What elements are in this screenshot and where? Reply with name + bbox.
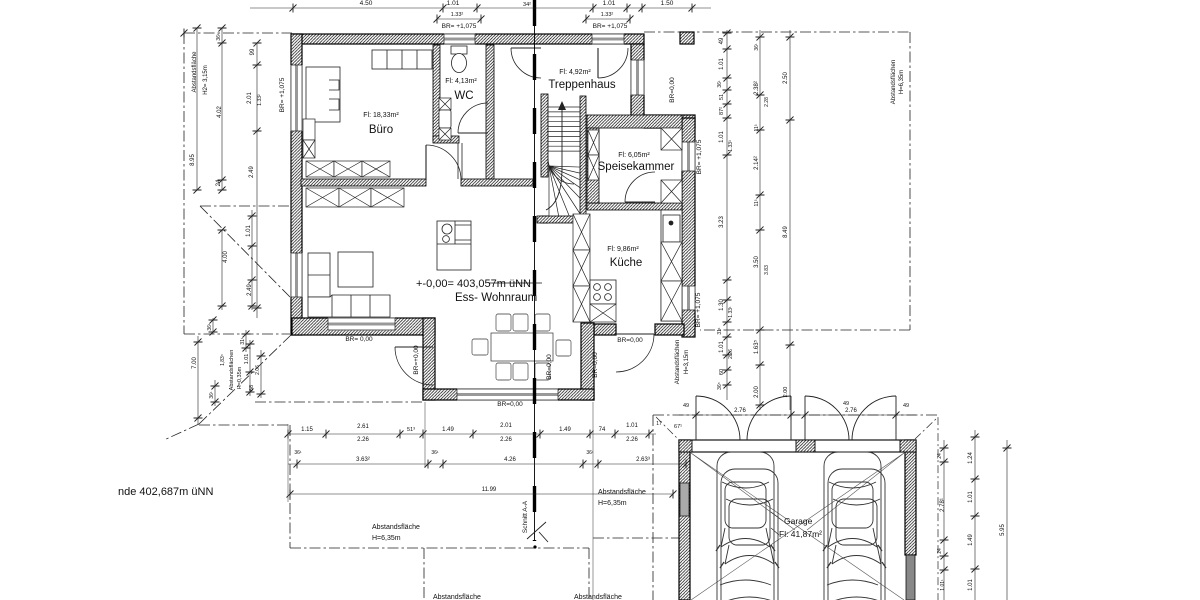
svg-text:BR=+0,00: BR=+0,00	[413, 345, 420, 375]
svg-text:2.00: 2.00	[783, 387, 789, 398]
svg-text:1.24: 1.24	[968, 452, 974, 464]
svg-text:1.01: 1.01	[246, 225, 252, 237]
svg-text:Fl: 41,87m²: Fl: 41,87m²	[779, 529, 822, 539]
svg-text:Büro: Büro	[369, 124, 393, 136]
svg-text:Schnitt A-A: Schnitt A-A	[522, 500, 529, 533]
svg-text:7.00: 7.00	[192, 357, 198, 369]
svg-text:36¹: 36¹	[294, 450, 302, 456]
svg-text:4.02: 4.02	[217, 106, 223, 118]
svg-text:67¹: 67¹	[674, 424, 682, 430]
svg-text:2.49: 2.49	[249, 166, 255, 178]
svg-text:BR=0,00: BR=0,00	[497, 401, 523, 408]
svg-text:Garage: Garage	[784, 516, 813, 526]
svg-text:31¹: 31¹	[717, 327, 723, 335]
svg-text:1.63⁵: 1.63⁵	[753, 339, 760, 354]
svg-text:2.61: 2.61	[357, 424, 369, 430]
svg-text:1.30: 1.30	[719, 299, 725, 311]
svg-text:24: 24	[937, 453, 943, 459]
svg-text:H=0,35m: H=0,35m	[237, 366, 243, 389]
svg-text:1.49: 1.49	[442, 427, 454, 433]
svg-text:49: 49	[683, 403, 689, 409]
svg-text:BR= 0,00: BR= 0,00	[345, 336, 373, 343]
svg-text:Abstandsflächen: Abstandsflächen	[229, 350, 235, 391]
svg-text:Ess- Wohnraum: Ess- Wohnraum	[455, 292, 537, 304]
svg-text:BR=0,00: BR=0,00	[669, 77, 676, 103]
svg-text:1.01: 1.01	[719, 131, 725, 143]
svg-text:Fl: 6,05m²: Fl: 6,05m²	[618, 152, 650, 159]
svg-text:1.50: 1.50	[661, 0, 674, 7]
svg-text:1.01: 1.01	[244, 354, 250, 365]
svg-text:1.33²: 1.33²	[257, 94, 263, 106]
svg-text:17: 17	[656, 421, 662, 427]
svg-text:4.50: 4.50	[360, 0, 373, 7]
svg-text:11³: 11³	[754, 199, 760, 206]
svg-text:68: 68	[249, 385, 255, 391]
svg-text:11³: 11³	[754, 124, 760, 131]
svg-text:36¹: 36¹	[717, 80, 723, 88]
svg-text:51³: 51³	[407, 427, 415, 433]
svg-text:4.00: 4.00	[223, 251, 229, 263]
svg-text:2.38²: 2.38²	[754, 81, 760, 95]
svg-text:1.01: 1.01	[968, 491, 974, 503]
svg-text:4.26: 4.26	[504, 457, 516, 463]
svg-text:49: 49	[843, 401, 849, 407]
svg-text:99: 99	[250, 48, 256, 55]
svg-text:2.49: 2.49	[247, 284, 253, 296]
svg-text:1.15: 1.15	[301, 427, 313, 433]
svg-text:1,83⁵: 1,83⁵	[220, 354, 226, 366]
svg-text:nde 402,687m üNN: nde 402,687m üNN	[118, 486, 213, 498]
svg-text:1.01: 1.01	[719, 58, 725, 70]
svg-text:H=6,35m: H=6,35m	[598, 500, 627, 507]
svg-text:Abstandsflächen: Abstandsflächen	[675, 340, 681, 384]
svg-text:1.33²: 1.33²	[451, 12, 464, 18]
svg-text:H=6,35m: H=6,35m	[372, 535, 401, 542]
svg-text:51: 51	[719, 94, 725, 100]
svg-text:24: 24	[937, 548, 943, 554]
svg-text:1.01: 1.01	[968, 579, 974, 591]
svg-text:3.63²: 3.63²	[356, 457, 370, 463]
svg-text:Fl: 4,92m²: Fl: 4,92m²	[559, 69, 591, 76]
svg-text:1.01: 1.01	[719, 341, 725, 353]
svg-text:1.33³: 1.33³	[728, 140, 734, 152]
svg-text:2.26: 2.26	[500, 437, 512, 443]
svg-text:H=3,15m: H=3,15m	[684, 350, 690, 375]
svg-text:1.33¹: 1.33¹	[728, 306, 734, 318]
svg-text:5.95: 5.95	[1000, 524, 1006, 536]
svg-text:49: 49	[903, 403, 909, 409]
svg-text:BR=0,00: BR=0,00	[592, 352, 599, 378]
svg-text:36¹: 36¹	[209, 391, 215, 399]
svg-text:H=6,35m: H=6,35m	[899, 70, 905, 95]
svg-text:60: 60	[719, 369, 725, 375]
svg-text:BR=0,00: BR=0,00	[617, 337, 643, 344]
svg-text:2.01: 2.01	[500, 423, 512, 429]
svg-text:2.28: 2.28	[764, 97, 770, 107]
svg-text:BR= +1,075: BR= +1,075	[593, 23, 628, 30]
svg-text:2.76: 2.76	[734, 408, 746, 414]
svg-text:2.01: 2.01	[247, 92, 253, 104]
svg-text:BR= +1,075: BR= +1,075	[695, 292, 702, 327]
svg-text:3.23: 3.23	[719, 216, 725, 228]
svg-text:Fl: 18,33m²: Fl: 18,33m²	[363, 112, 399, 119]
svg-text:31¹: 31¹	[240, 337, 246, 345]
svg-text:+-0,00= 403,057m üNN: +-0,00= 403,057m üNN	[416, 278, 531, 290]
svg-text:49: 49	[719, 37, 725, 44]
svg-text:36¹: 36¹	[207, 323, 213, 331]
svg-text:Speisekammer: Speisekammer	[598, 161, 675, 173]
svg-text:Fl: 9,86m²: Fl: 9,86m²	[607, 246, 639, 253]
svg-text:BR= +1,075: BR= +1,075	[696, 139, 703, 174]
svg-text:BR=0,00: BR=0,00	[546, 354, 553, 380]
svg-text:36⁵: 36⁵	[717, 382, 723, 390]
svg-text:Küche: Küche	[610, 257, 643, 269]
svg-text:Abstandsflächen: Abstandsflächen	[891, 60, 897, 104]
svg-text:8.95: 8.95	[190, 154, 196, 166]
svg-text:24: 24	[216, 179, 222, 186]
svg-text:2.78¹: 2.78¹	[940, 498, 946, 512]
svg-text:74: 74	[599, 427, 606, 433]
svg-text:Treppenhaus: Treppenhaus	[548, 79, 616, 91]
svg-text:2.26: 2.26	[728, 349, 734, 359]
svg-text:Fl: 4,13m²: Fl: 4,13m²	[445, 78, 477, 85]
svg-text:2.76: 2.76	[845, 408, 857, 414]
svg-text:87²: 87²	[719, 107, 725, 115]
svg-text:1.33²: 1.33²	[601, 12, 614, 18]
svg-text:3.83: 3.83	[764, 265, 770, 275]
svg-text:11.99: 11.99	[482, 487, 497, 493]
svg-text:BR= +1,075: BR= +1,075	[442, 23, 477, 30]
svg-text:2.06: 2.06	[255, 365, 261, 375]
svg-text:2.14²: 2.14²	[754, 156, 760, 170]
svg-text:2.26: 2.26	[357, 437, 369, 443]
svg-text:2.50: 2.50	[783, 72, 789, 84]
svg-text:2.00: 2.00	[754, 386, 760, 398]
svg-text:BR= +1,075: BR= +1,075	[279, 77, 286, 112]
svg-text:H2= 3,15m: H2= 3,15m	[203, 65, 209, 95]
svg-text:1.49: 1.49	[559, 427, 571, 433]
svg-text:34²: 34²	[523, 2, 531, 8]
svg-text:8.49: 8.49	[783, 226, 789, 238]
svg-text:Abstandsfläche: Abstandsfläche	[433, 594, 481, 600]
svg-text:1.01: 1.01	[447, 0, 460, 7]
svg-text:36¹: 36¹	[216, 33, 222, 41]
svg-text:36¹: 36¹	[431, 450, 439, 456]
svg-text:Abstandsfläche: Abstandsfläche	[372, 524, 420, 531]
svg-text:2.63³: 2.63³	[636, 457, 650, 463]
svg-text:1.01¹: 1.01¹	[940, 579, 946, 591]
svg-text:3.50: 3.50	[754, 256, 760, 268]
svg-text:1.01: 1.01	[626, 423, 638, 429]
svg-text:1.49: 1.49	[968, 534, 974, 546]
svg-text:WC: WC	[454, 90, 473, 102]
svg-text:1.01: 1.01	[603, 0, 616, 7]
svg-text:Abstandsfläche: Abstandsfläche	[574, 594, 622, 600]
svg-text:36¹: 36¹	[754, 43, 760, 51]
svg-text:2.26: 2.26	[626, 437, 638, 443]
svg-text:Abstandsfläche: Abstandsfläche	[598, 489, 646, 496]
